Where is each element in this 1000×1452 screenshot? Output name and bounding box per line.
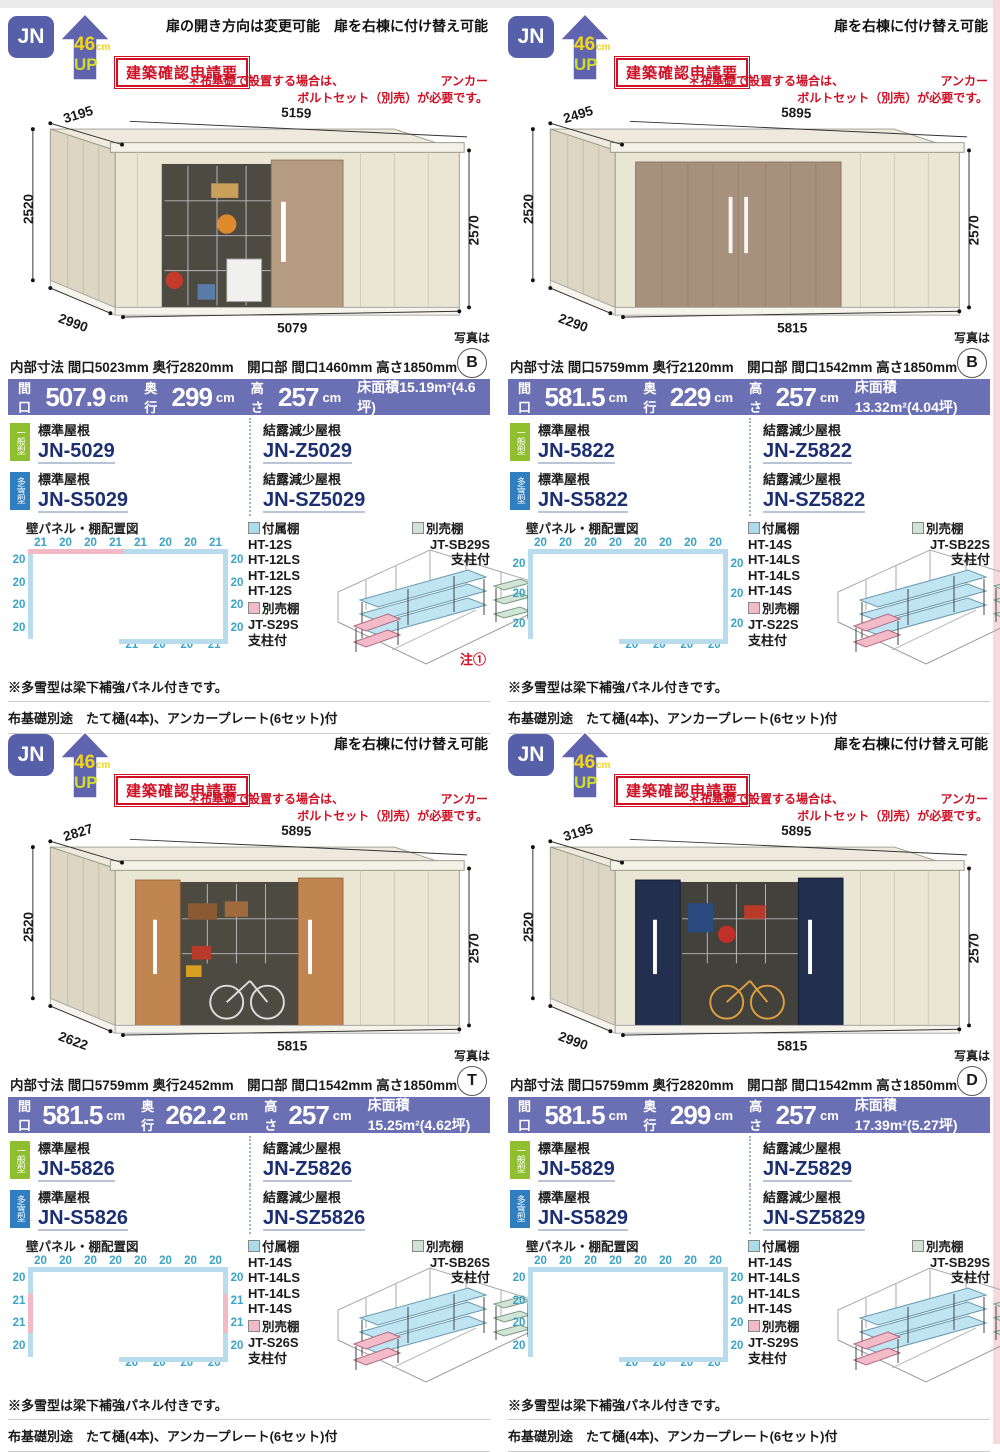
panel-counts-top: 2020202020202020 bbox=[28, 1255, 228, 1267]
model-table: 一般型標準屋根JN-5829 結露減少屋根JN-Z5829 多雪型標準屋根JN-… bbox=[508, 1136, 990, 1234]
roof-type-label: 結露減少屋根 bbox=[263, 1141, 341, 1156]
panel-outline bbox=[28, 549, 228, 639]
anchor-note-line1: ＊布基礎で設置する場合は、 bbox=[188, 790, 344, 807]
model-table: 一般型標準屋根JN-5822 結露減少屋根JN-Z5822 多雪型標準屋根JN-… bbox=[508, 418, 990, 516]
optional-shelf-label-2: 別売棚 bbox=[926, 1236, 964, 1255]
svg-text:cm: cm bbox=[596, 42, 611, 53]
photo-reference: 写真は T bbox=[454, 1047, 490, 1096]
dim-bottom-width: 5815 bbox=[277, 1039, 308, 1054]
panel-outline bbox=[528, 1267, 728, 1357]
included-shelf-label: 付属棚 bbox=[762, 1236, 800, 1255]
roof-type-label: 結露減少屋根 bbox=[263, 1190, 341, 1205]
model-code: JN-S5029 bbox=[38, 489, 128, 513]
jn-series-badge: JN bbox=[508, 16, 554, 58]
model-code: JN-5829 bbox=[538, 1158, 615, 1182]
layout-section: 壁パネル・棚配置図 2020202020202020 20202020 2020… bbox=[508, 1236, 990, 1388]
banner-height-label: 高さ bbox=[749, 378, 772, 416]
svg-text:46: 46 bbox=[574, 34, 595, 55]
optional-shelf-code-2: JT-SB22S bbox=[912, 537, 990, 552]
model-code: JN-Z5822 bbox=[763, 440, 852, 464]
shelf-layout-diagram: 付属棚 HT-14SHT-14LSHT-14LSHT-14S 別売棚 JT-S2… bbox=[748, 1236, 990, 1388]
unit-cm: cm bbox=[322, 390, 341, 405]
banner-depth-value: 299 bbox=[670, 1102, 710, 1128]
model-general-z: 結露減少屋根JN-Z5829 bbox=[749, 1136, 990, 1185]
unit-cm: cm bbox=[609, 1108, 628, 1123]
photo-letter-badge: B bbox=[957, 348, 987, 378]
optional-shelf-swatch bbox=[248, 1320, 260, 1332]
dim-left-height: 2520 bbox=[521, 194, 536, 224]
jn-series-badge: JN bbox=[508, 734, 554, 776]
inner-dimensions-spec: 内部寸法 間口5023mm 奥行2820mm 開口部 間口1460mm 高さ18… bbox=[8, 352, 490, 376]
footnote-mark: 注① bbox=[460, 649, 486, 668]
optional-shelf-label: 別売棚 bbox=[762, 1316, 800, 1335]
door-note: 扉を右棟に付け替え可能 bbox=[334, 734, 488, 754]
banner-area-label: 床面積 bbox=[357, 379, 399, 395]
model-snow-standard: 多雪型標準屋根JN-S5829 bbox=[508, 1185, 749, 1234]
panel-counts-top: 2020202020202020 bbox=[528, 537, 728, 549]
product-panel-jn5826: JN 46 cm UP 建築確認申請要 扉を右棟に付け替え可能 ＊布基礎で設置す… bbox=[0, 726, 500, 1444]
svg-text:UP: UP bbox=[574, 773, 598, 792]
general-type-badge: 一般型 bbox=[10, 1141, 30, 1179]
banner-area-value: 13.32m²(4.04坪) bbox=[855, 399, 958, 415]
included-shelf-swatch bbox=[248, 1240, 260, 1252]
model-general-standard: 一般型標準屋根JN-5826 bbox=[8, 1136, 249, 1185]
photo-reference: 写真は B bbox=[954, 329, 990, 378]
banner-depth-label: 奥行 bbox=[141, 1096, 161, 1134]
panel-diagram-title: 壁パネル・棚配置図 bbox=[8, 518, 248, 537]
photo-letter-badge: D bbox=[957, 1066, 987, 1096]
unit-cm: cm bbox=[109, 390, 128, 405]
shed-illustration-block: 2827 5895 2520 2570 2622 5815 写真は T bbox=[8, 818, 490, 1070]
panel-counts-left: 20202020 bbox=[510, 1267, 528, 1357]
dim-depth: 2990 bbox=[557, 1029, 590, 1053]
shed-illustration: 2495 5895 2520 2570 2290 5815 bbox=[508, 100, 990, 352]
optional-shelf-code-2: JT-SB29S bbox=[912, 1255, 990, 1270]
banner-height-label: 高さ bbox=[251, 378, 274, 416]
shed-door-right bbox=[798, 878, 843, 1025]
banner-height-label: 高さ bbox=[749, 1096, 772, 1134]
model-general-z: 結露減少屋根JN-Z5822 bbox=[749, 418, 990, 467]
roof-type-label: 結露減少屋根 bbox=[763, 1141, 841, 1156]
included-shelf-label: 付属棚 bbox=[762, 518, 800, 537]
pink-panel-segment bbox=[223, 1294, 228, 1333]
banner-width-value: 581.5 bbox=[42, 1102, 102, 1128]
shelf-legend-right: 別売棚 JT-SB29S支柱付 bbox=[912, 1236, 990, 1286]
dim-left-height: 2520 bbox=[21, 912, 36, 942]
snow-type-badge: 多雪型 bbox=[10, 472, 30, 510]
46cm-up-arrow-icon: 46 cm UP bbox=[558, 12, 612, 82]
banner-width-label: 間口 bbox=[18, 1096, 38, 1134]
catalog-grid: JN 46 cm UP 建築確認申請要 扉の開き方向は変更可能 扉を右棟に付け替… bbox=[0, 8, 1000, 1444]
door-note: 扉を右棟に付け替え可能 bbox=[834, 16, 988, 36]
banner-depth-value: 299 bbox=[172, 384, 212, 410]
banner-area-label: 床面積 bbox=[855, 1097, 897, 1113]
roof-type-label: 結露減少屋根 bbox=[263, 423, 341, 438]
panel-counts-left: 20202020 bbox=[10, 549, 28, 639]
anchor-note-anchor: アンカー bbox=[940, 72, 988, 89]
photo-label: 写真は bbox=[954, 1047, 990, 1064]
roof-type-label: 標準屋根 bbox=[538, 1141, 590, 1156]
optional-shelf-swatch bbox=[748, 602, 760, 614]
page-top-strip bbox=[0, 0, 1000, 8]
banner-width-label: 間口 bbox=[518, 378, 541, 416]
shed-door-right bbox=[298, 878, 343, 1025]
banner-floor-area: 床面積15.19m²(4.6坪) bbox=[357, 377, 480, 417]
panel-header: JN 46 cm UP 建築確認申請要 扉を右棟に付け替え可能 ＊布基礎で設置す… bbox=[508, 732, 990, 818]
panel-outline bbox=[28, 1267, 228, 1357]
optional-shelf-code-2: JT-SB29S bbox=[412, 537, 490, 552]
dim-right-height: 2570 bbox=[967, 215, 982, 245]
foundation-note: 布基礎別途 たて樋(4本)、アンカープレート(6セット)付 bbox=[8, 1420, 490, 1452]
model-code: JN-SZ5822 bbox=[763, 489, 865, 513]
shelf-layout-diagram: 付属棚 HT-14SHT-14LSHT-14LSHT-14S 別売棚 JT-S2… bbox=[748, 518, 990, 670]
banner-floor-area: 床面積17.39m²(5.27坪) bbox=[855, 1095, 980, 1135]
banner-depth-value: 262.2 bbox=[165, 1102, 225, 1128]
with-posts-label: 支柱付 bbox=[912, 1270, 990, 1285]
included-shelf-label: 付属棚 bbox=[262, 518, 300, 537]
banner-height-value: 257 bbox=[278, 384, 318, 410]
panel-counts-top: 2020202020202020 bbox=[528, 1255, 728, 1267]
dim-top-width: 5895 bbox=[281, 823, 312, 839]
dim-top-width: 5895 bbox=[781, 105, 812, 121]
optional-shelf-swatch bbox=[248, 602, 260, 614]
model-snow-z: 結露減少屋根JN-SZ5029 bbox=[249, 467, 490, 516]
optional-shelf-label-2: 別売棚 bbox=[926, 518, 964, 537]
svg-text:cm: cm bbox=[96, 42, 111, 53]
inner-dimensions-spec: 内部寸法 間口5759mm 奥行2820mm 開口部 間口1542mm 高さ18… bbox=[508, 1070, 990, 1094]
model-snow-standard: 多雪型標準屋根JN-S5029 bbox=[8, 467, 249, 516]
shelf-legend-right: 別売棚 JT-SB26S支柱付 bbox=[412, 1236, 490, 1286]
pink-panel-segment bbox=[28, 1294, 33, 1333]
photo-label: 写真は bbox=[454, 329, 490, 346]
dim-depth: 2290 bbox=[557, 311, 590, 335]
shed-door-left bbox=[136, 880, 181, 1025]
banner-height-label: 高さ bbox=[264, 1096, 284, 1134]
model-code: JN-SZ5826 bbox=[263, 1207, 365, 1231]
dim-diagonal: 2495 bbox=[562, 103, 596, 126]
anchor-note-anchor: アンカー bbox=[440, 790, 488, 807]
jn-series-badge: JN bbox=[8, 16, 54, 58]
snow-type-badge: 多雪型 bbox=[510, 472, 530, 510]
shed-illustration: 2827 5895 2520 2570 2622 5815 bbox=[8, 818, 490, 1070]
layout-section: 壁パネル・棚配置図 2020202020202020 20212120 2021… bbox=[8, 1236, 490, 1388]
model-general-z: 結露減少屋根JN-Z5029 bbox=[249, 418, 490, 467]
included-shelf-swatch bbox=[748, 1240, 760, 1252]
unit-cm: cm bbox=[714, 390, 733, 405]
panel-counts-left: 20212120 bbox=[10, 1267, 28, 1357]
panel-outline bbox=[528, 549, 728, 639]
model-code: JN-SZ5029 bbox=[263, 489, 365, 513]
roof-type-label: 結露減少屋根 bbox=[763, 472, 841, 487]
shed-door-left bbox=[636, 880, 681, 1025]
anchor-note-anchor: アンカー bbox=[440, 72, 488, 89]
model-general-standard: 一般型標準屋根JN-5822 bbox=[508, 418, 749, 467]
included-shelf-swatch bbox=[248, 522, 260, 534]
model-snow-standard: 多雪型標準屋根JN-S5822 bbox=[508, 467, 749, 516]
46cm-up-arrow-icon: 46 cm UP bbox=[58, 12, 112, 82]
panel-counts-left: 202020 bbox=[510, 549, 528, 639]
optional-shelf-label-2: 別売棚 bbox=[426, 518, 464, 537]
anchor-note-anchor: アンカー bbox=[940, 790, 988, 807]
banner-height-value: 257 bbox=[776, 1102, 816, 1128]
product-panel-jn5822: JN 46 cm UP 建築確認申請要 扉を右棟に付け替え可能 ＊布基礎で設置す… bbox=[500, 8, 1000, 726]
model-code: JN-Z5829 bbox=[763, 1158, 852, 1182]
shelf-legend-right: 別売棚 JT-SB29S支柱付 bbox=[412, 518, 490, 568]
banner-area-value: 15.25m²(4.62坪) bbox=[368, 1117, 471, 1133]
roof-type-label: 標準屋根 bbox=[38, 423, 90, 438]
model-code: JN-S5826 bbox=[38, 1207, 128, 1231]
inner-dimensions-spec: 内部寸法 間口5759mm 奥行2452mm 開口部 間口1542mm 高さ18… bbox=[8, 1070, 490, 1094]
svg-text:UP: UP bbox=[574, 55, 598, 74]
unit-cm: cm bbox=[333, 1108, 352, 1123]
banner-height-value: 257 bbox=[288, 1102, 328, 1128]
dim-top-width: 5895 bbox=[781, 823, 812, 839]
optional-shelf-swatch-2 bbox=[912, 1240, 924, 1252]
photo-letter-badge: T bbox=[457, 1066, 487, 1096]
shed-illustration-block: 3195 5159 2520 2570 2990 5079 写真は B bbox=[8, 100, 490, 352]
general-type-badge: 一般型 bbox=[10, 423, 30, 461]
general-type-badge: 一般型 bbox=[510, 1141, 530, 1179]
panel-header: JN 46 cm UP 建築確認申請要 扉を右棟に付け替え可能 ＊布基礎で設置す… bbox=[8, 732, 490, 818]
snow-type-note: ※多雪型は梁下補強パネル付きです。 bbox=[8, 672, 490, 702]
model-code: JN-Z5029 bbox=[263, 440, 352, 464]
photo-label: 写真は bbox=[454, 1047, 490, 1064]
unit-cm: cm bbox=[229, 1108, 248, 1123]
model-snow-z: 結露減少屋根JN-SZ5826 bbox=[249, 1185, 490, 1234]
anchor-note-line1: ＊布基礎で設置する場合は、 bbox=[688, 72, 844, 89]
optional-shelf-swatch-2 bbox=[912, 522, 924, 534]
with-posts-label: 支柱付 bbox=[412, 552, 490, 567]
size-banner: 間口581.5cm 奥行299cm 高さ257cm 床面積17.39m²(5.2… bbox=[508, 1097, 990, 1133]
panel-header: JN 46 cm UP 建築確認申請要 扉の開き方向は変更可能 扉を右棟に付け替… bbox=[8, 14, 490, 100]
panel-diagram-title: 壁パネル・棚配置図 bbox=[8, 1236, 248, 1255]
model-code: JN-S5829 bbox=[538, 1207, 628, 1231]
svg-text:cm: cm bbox=[96, 760, 111, 771]
dim-left-height: 2520 bbox=[21, 194, 36, 224]
banner-width-value: 581.5 bbox=[545, 384, 605, 410]
banner-area-value: 17.39m²(5.27坪) bbox=[855, 1117, 958, 1133]
optional-shelf-code-2: JT-SB26S bbox=[412, 1255, 490, 1270]
anchor-note-line1: ＊布基礎で設置する場合は、 bbox=[188, 72, 344, 89]
wall-panel-diagram: 壁パネル・棚配置図 2020202020202020 20202020 2020… bbox=[508, 1236, 748, 1388]
model-code: JN-S5822 bbox=[538, 489, 628, 513]
banner-width-value: 581.5 bbox=[545, 1102, 605, 1128]
shelf-legend-right: 別売棚 JT-SB22S支柱付 bbox=[912, 518, 990, 568]
inner-dimensions-spec: 内部寸法 間口5759mm 奥行2120mm 開口部 間口1542mm 高さ18… bbox=[508, 352, 990, 376]
panel-counts-right: 20202020 bbox=[728, 1267, 746, 1357]
optional-shelf-label: 別売棚 bbox=[762, 598, 800, 617]
banner-height-value: 257 bbox=[776, 384, 816, 410]
snow-type-note: ※多雪型は梁下補強パネル付きです。 bbox=[508, 672, 990, 702]
anchor-note-line1: ＊布基礎で設置する場合は、 bbox=[688, 790, 844, 807]
shed-illustration: 3195 5159 2520 2570 2990 5079 bbox=[8, 100, 490, 352]
roof-type-label: 結露減少屋根 bbox=[763, 1190, 841, 1205]
dim-right-height: 2570 bbox=[467, 933, 482, 963]
general-type-badge: 一般型 bbox=[510, 423, 530, 461]
photo-label: 写真は bbox=[954, 329, 990, 346]
banner-area-label: 床面積 bbox=[855, 379, 897, 395]
shed-illustration-block: 3195 5895 2520 2570 2990 5815 写真は D bbox=[508, 818, 990, 1070]
dim-depth: 2622 bbox=[57, 1029, 90, 1053]
roof-type-label: 結露減少屋根 bbox=[263, 472, 341, 487]
snow-type-badge: 多雪型 bbox=[10, 1190, 30, 1228]
dim-bottom-width: 5079 bbox=[277, 321, 308, 336]
photo-reference: 写真は B bbox=[454, 329, 490, 378]
unit-cm: cm bbox=[820, 390, 839, 405]
panel-diagram-title: 壁パネル・棚配置図 bbox=[508, 1236, 748, 1255]
dim-top-width: 5159 bbox=[281, 105, 312, 121]
included-shelf-swatch bbox=[748, 522, 760, 534]
dim-bottom-width: 5815 bbox=[777, 1039, 808, 1054]
unit-cm: cm bbox=[714, 1108, 733, 1123]
panel-counts-right: 20202020 bbox=[228, 549, 246, 639]
panel-diagram-title: 壁パネル・棚配置図 bbox=[508, 518, 748, 537]
unit-cm: cm bbox=[820, 1108, 839, 1123]
model-snow-z: 結露減少屋根JN-SZ5829 bbox=[749, 1185, 990, 1234]
shed-illustration: 3195 5895 2520 2570 2990 5815 bbox=[508, 818, 990, 1070]
roof-type-label: 結露減少屋根 bbox=[763, 423, 841, 438]
panel-counts-right: 202020 bbox=[728, 549, 746, 639]
with-posts-label: 支柱付 bbox=[412, 1270, 490, 1285]
unit-cm: cm bbox=[216, 390, 235, 405]
included-shelf-label: 付属棚 bbox=[262, 1236, 300, 1255]
wall-panel-diagram: 壁パネル・棚配置図 2120202121202021 20202020 2020… bbox=[8, 518, 248, 670]
model-general-standard: 一般型標準屋根JN-5029 bbox=[8, 418, 249, 467]
banner-depth-value: 229 bbox=[670, 384, 710, 410]
model-code: JN-5029 bbox=[38, 440, 115, 464]
optional-shelf-label: 別売棚 bbox=[262, 1316, 300, 1335]
optional-shelf-swatch-2 bbox=[412, 1240, 424, 1252]
optional-shelf-swatch-2 bbox=[412, 522, 424, 534]
size-banner: 間口507.9cm 奥行299cm 高さ257cm 床面積15.19m²(4.6… bbox=[8, 379, 490, 415]
snow-type-badge: 多雪型 bbox=[510, 1190, 530, 1228]
optional-shelf-label: 別売棚 bbox=[262, 598, 300, 617]
layout-section: 壁パネル・棚配置図 2120202121202021 20202020 2020… bbox=[8, 518, 490, 670]
roof-type-label: 標準屋根 bbox=[538, 1190, 590, 1205]
shelf-layout-diagram: 付属棚 HT-14SHT-14LSHT-14LSHT-14S 別売棚 JT-S2… bbox=[248, 1236, 490, 1388]
dim-diagonal: 3195 bbox=[562, 821, 596, 844]
dim-diagonal: 2827 bbox=[62, 821, 95, 844]
banner-depth-label: 奥行 bbox=[144, 378, 167, 416]
photo-reference: 写真は D bbox=[954, 1047, 990, 1096]
size-banner: 間口581.5cm 奥行229cm 高さ257cm 床面積13.32m²(4.0… bbox=[508, 379, 990, 415]
banner-width-label: 間口 bbox=[18, 378, 41, 416]
banner-depth-label: 奥行 bbox=[643, 1096, 666, 1134]
size-banner: 間口581.5cm 奥行262.2cm 高さ257cm 床面積15.25m²(4… bbox=[8, 1097, 490, 1133]
banner-floor-area: 床面積15.25m²(4.62坪) bbox=[368, 1095, 480, 1135]
product-panel-jn5029: JN 46 cm UP 建築確認申請要 扉の開き方向は変更可能 扉を右棟に付け替… bbox=[0, 8, 500, 726]
layout-section: 壁パネル・棚配置図 2020202020202020 202020 202020… bbox=[508, 518, 990, 670]
panel-counts-right: 20212120 bbox=[228, 1267, 246, 1357]
model-general-z: 結露減少屋根JN-Z5826 bbox=[249, 1136, 490, 1185]
wall-panel-diagram: 壁パネル・棚配置図 2020202020202020 20212120 2021… bbox=[8, 1236, 248, 1388]
roof-type-label: 標準屋根 bbox=[38, 1141, 90, 1156]
model-table: 一般型標準屋根JN-5826 結露減少屋根JN-Z5826 多雪型標準屋根JN-… bbox=[8, 1136, 490, 1234]
model-table: 一般型標準屋根JN-5029 結露減少屋根JN-Z5029 多雪型標準屋根JN-… bbox=[8, 418, 490, 516]
banner-width-label: 間口 bbox=[518, 1096, 541, 1134]
46cm-up-arrow-icon: 46 cm UP bbox=[58, 730, 112, 800]
jn-series-badge: JN bbox=[8, 734, 54, 776]
wall-panel-diagram: 壁パネル・棚配置図 2020202020202020 202020 202020… bbox=[508, 518, 748, 670]
optional-shelf-label-2: 別売棚 bbox=[426, 1236, 464, 1255]
banner-depth-label: 奥行 bbox=[643, 378, 666, 416]
with-posts-label: 支柱付 bbox=[912, 552, 990, 567]
photo-letter-badge: B bbox=[457, 348, 487, 378]
model-code: JN-Z5826 bbox=[263, 1158, 352, 1182]
unit-cm: cm bbox=[106, 1108, 125, 1123]
svg-text:UP: UP bbox=[74, 773, 98, 792]
dim-bottom-width: 5815 bbox=[777, 321, 808, 336]
model-code: JN-5822 bbox=[538, 440, 615, 464]
svg-text:46: 46 bbox=[74, 752, 95, 773]
roof-type-label: 標準屋根 bbox=[538, 472, 590, 487]
svg-text:46: 46 bbox=[574, 752, 595, 773]
banner-floor-area: 床面積13.32m²(4.04坪) bbox=[855, 377, 980, 417]
snow-type-note: ※多雪型は梁下補強パネル付きです。 bbox=[8, 1390, 490, 1420]
model-snow-z: 結露減少屋根JN-SZ5822 bbox=[749, 467, 990, 516]
model-snow-standard: 多雪型標準屋根JN-S5826 bbox=[8, 1185, 249, 1234]
shed-illustration-block: 2495 5895 2520 2570 2290 5815 写真は B bbox=[508, 100, 990, 352]
banner-area-label: 床面積 bbox=[368, 1097, 410, 1113]
dim-diagonal: 3195 bbox=[62, 103, 96, 126]
model-code: JN-SZ5829 bbox=[763, 1207, 865, 1231]
door-note: 扉の開き方向は変更可能 扉を右棟に付け替え可能 bbox=[166, 16, 488, 36]
dim-left-height: 2520 bbox=[521, 912, 536, 942]
product-panel-jn5829: JN 46 cm UP 建築確認申請要 扉を右棟に付け替え可能 ＊布基礎で設置す… bbox=[500, 726, 1000, 1444]
unit-cm: cm bbox=[609, 390, 628, 405]
model-code: JN-5826 bbox=[38, 1158, 115, 1182]
door-note: 扉を右棟に付け替え可能 bbox=[834, 734, 988, 754]
foundation-note: 布基礎別途 たて樋(4本)、アンカープレート(6セット)付 bbox=[508, 1420, 990, 1452]
snow-type-note: ※多雪型は梁下補強パネル付きです。 bbox=[508, 1390, 990, 1420]
svg-text:cm: cm bbox=[596, 760, 611, 771]
dim-depth: 2990 bbox=[57, 311, 90, 335]
svg-text:46: 46 bbox=[74, 34, 95, 55]
optional-shelf-swatch bbox=[748, 1320, 760, 1332]
model-general-standard: 一般型標準屋根JN-5829 bbox=[508, 1136, 749, 1185]
shelf-layout-diagram: 付属棚 HT-12SHT-12LSHT-12LSHT-12S 別売棚 JT-S2… bbox=[248, 518, 490, 670]
roof-type-label: 標準屋根 bbox=[538, 423, 590, 438]
panel-header: JN 46 cm UP 建築確認申請要 扉を右棟に付け替え可能 ＊布基礎で設置す… bbox=[508, 14, 990, 100]
banner-width-value: 507.9 bbox=[45, 384, 105, 410]
svg-text:UP: UP bbox=[74, 55, 98, 74]
dim-right-height: 2570 bbox=[467, 215, 482, 245]
panel-counts-top: 2120202121202021 bbox=[28, 537, 228, 549]
roof-type-label: 標準屋根 bbox=[38, 1190, 90, 1205]
roof-type-label: 標準屋根 bbox=[38, 472, 90, 487]
dim-right-height: 2570 bbox=[967, 933, 982, 963]
46cm-up-arrow-icon: 46 cm UP bbox=[558, 730, 612, 800]
